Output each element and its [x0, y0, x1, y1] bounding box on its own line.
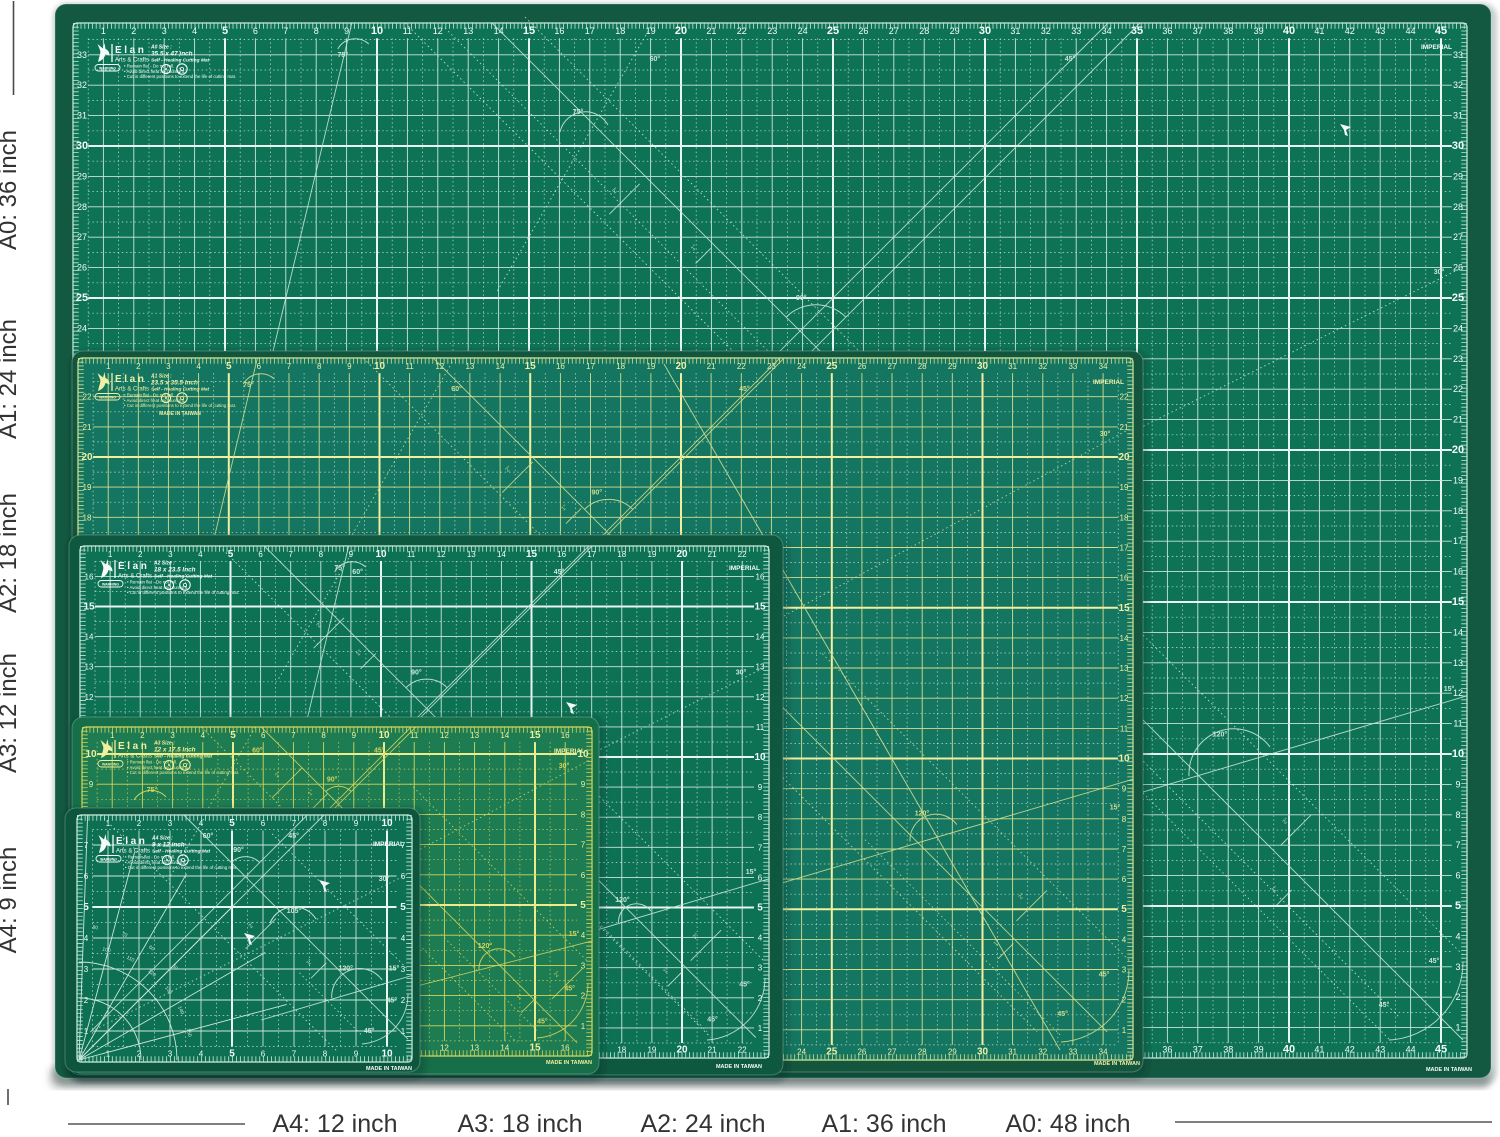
svg-text:19: 19 [647, 550, 656, 559]
svg-text:32: 32 [1038, 362, 1047, 371]
svg-text:16: 16 [1453, 567, 1463, 577]
svg-text:120°: 120° [338, 964, 353, 972]
svg-text:45°: 45° [554, 568, 565, 576]
svg-text:17: 17 [1120, 544, 1129, 553]
svg-text:12: 12 [85, 693, 94, 702]
svg-text:20: 20 [675, 361, 687, 372]
svg-text:• Avoid direct heat and sunlig: • Avoid direct heat and sunlight. [124, 398, 185, 403]
svg-text:29: 29 [948, 362, 957, 371]
svg-text:11: 11 [756, 723, 765, 732]
svg-text:• Cut in different positions t: • Cut in different positions to extend t… [125, 865, 237, 870]
svg-text:60°: 60° [650, 55, 661, 63]
svg-text:9: 9 [1122, 785, 1127, 794]
svg-text:18: 18 [616, 362, 625, 371]
svg-text:8: 8 [323, 819, 328, 828]
svg-text:• Cut in different positions t: • Cut in different positions to extend t… [124, 74, 236, 79]
svg-text:27: 27 [888, 1048, 897, 1057]
svg-text:17: 17 [587, 550, 596, 559]
svg-text:29: 29 [950, 26, 960, 36]
svg-text:75°: 75° [334, 564, 345, 572]
svg-text:15°: 15° [569, 930, 580, 938]
svg-text:5: 5 [230, 730, 236, 741]
svg-text:3: 3 [168, 550, 173, 559]
svg-text:IMPERIAL: IMPERIAL [1093, 379, 1124, 386]
svg-text:8: 8 [314, 26, 319, 36]
svg-text:29: 29 [948, 1048, 957, 1057]
svg-text:11: 11 [407, 550, 416, 559]
svg-text:15: 15 [754, 602, 766, 613]
svg-text:WARNING: WARNING [102, 582, 119, 586]
svg-text:21: 21 [1120, 423, 1129, 432]
svg-text:35.5 x 47 inch: 35.5 x 47 inch [151, 51, 193, 58]
svg-text:26: 26 [857, 362, 866, 371]
svg-text:18: 18 [617, 1046, 626, 1055]
svg-text:45°: 45° [564, 985, 575, 993]
svg-text:5: 5 [228, 549, 234, 560]
svg-text:6: 6 [581, 871, 586, 880]
svg-text:20: 20 [675, 25, 687, 37]
svg-text:12: 12 [440, 731, 449, 740]
svg-text:25: 25 [76, 292, 88, 304]
svg-text:30: 30 [76, 140, 88, 152]
svg-text:• Avoid direct heat and sunlig: • Avoid direct heat and sunlight. [127, 765, 188, 770]
svg-text:IMPERIAL: IMPERIAL [373, 841, 404, 848]
svg-text:1: 1 [106, 819, 111, 828]
svg-text:33: 33 [1068, 1048, 1077, 1057]
svg-text:12: 12 [1120, 694, 1129, 703]
svg-text:1: 1 [758, 1024, 763, 1033]
svg-text:32: 32 [1453, 80, 1463, 90]
svg-text:4: 4 [581, 931, 586, 940]
svg-text:9 x 12 inch: 9 x 12 inch [152, 842, 185, 849]
svg-text:19: 19 [647, 1046, 656, 1055]
svg-text:16: 16 [561, 1044, 570, 1053]
svg-text:24: 24 [797, 362, 806, 371]
svg-text:45: 45 [1435, 1044, 1447, 1056]
svg-text:10: 10 [378, 730, 390, 741]
svg-text:Elan: Elan [115, 374, 147, 385]
svg-text:28: 28 [918, 1048, 927, 1057]
svg-text:2: 2 [401, 996, 406, 1005]
svg-text:43: 43 [1375, 1045, 1385, 1055]
svg-text:16: 16 [756, 572, 765, 581]
svg-text:22: 22 [737, 26, 747, 36]
svg-text:60°: 60° [203, 832, 214, 840]
svg-text:WARNING: WARNING [102, 762, 119, 766]
svg-text:16: 16 [85, 572, 94, 581]
svg-text:90°: 90° [411, 668, 422, 676]
svg-text:44: 44 [1406, 1045, 1416, 1055]
svg-text:13: 13 [470, 731, 479, 740]
svg-text:10: 10 [754, 752, 766, 763]
svg-text:17: 17 [586, 362, 595, 371]
svg-text:45°: 45° [1065, 55, 1076, 63]
svg-text:15: 15 [526, 549, 538, 560]
svg-text:22: 22 [1453, 384, 1463, 394]
svg-text:6: 6 [258, 550, 263, 559]
svg-text:A4: 9 inch: A4: 9 inch [0, 847, 22, 954]
svg-text:22: 22 [738, 1046, 747, 1055]
svg-text:27: 27 [889, 26, 899, 36]
svg-text:28: 28 [1453, 202, 1463, 212]
svg-text:35: 35 [1131, 25, 1143, 37]
svg-text:24: 24 [797, 1048, 806, 1057]
svg-text:28: 28 [918, 362, 927, 371]
svg-text:9: 9 [354, 1050, 359, 1059]
svg-text:14: 14 [500, 1044, 509, 1053]
svg-text:7: 7 [283, 26, 288, 36]
svg-text:9: 9 [1455, 779, 1460, 789]
svg-text:45°: 45° [1057, 1010, 1068, 1018]
svg-text:8: 8 [319, 550, 324, 559]
svg-text:2: 2 [84, 996, 89, 1005]
svg-text:14: 14 [496, 362, 505, 371]
svg-text:10: 10 [375, 549, 387, 560]
svg-text:19: 19 [646, 362, 655, 371]
svg-text:60°: 60° [352, 568, 363, 576]
svg-text:2: 2 [136, 362, 141, 371]
svg-text:4: 4 [199, 1050, 204, 1059]
svg-text:33: 33 [1068, 362, 1077, 371]
svg-text:45°: 45° [739, 385, 750, 393]
svg-text:30°: 30° [736, 668, 747, 676]
svg-text:1: 1 [581, 1022, 586, 1031]
svg-text:12: 12 [756, 693, 765, 702]
svg-text:3: 3 [170, 731, 175, 740]
svg-text:Elan: Elan [115, 45, 147, 56]
svg-text:8: 8 [758, 813, 763, 822]
svg-text:39: 39 [1254, 1045, 1264, 1055]
svg-text:13: 13 [1120, 664, 1129, 673]
svg-text:10: 10 [374, 361, 386, 372]
svg-text:7: 7 [288, 550, 293, 559]
svg-text:14: 14 [500, 731, 509, 740]
svg-text:• Avoid direct heat and sunlig: • Avoid direct heat and sunlight. [125, 860, 186, 865]
svg-text:17: 17 [1453, 536, 1463, 546]
svg-text:22: 22 [737, 362, 746, 371]
svg-text:33: 33 [77, 50, 87, 60]
svg-text:45°: 45° [374, 746, 385, 754]
svg-text:7: 7 [292, 1050, 297, 1059]
svg-text:18: 18 [1453, 506, 1463, 516]
svg-text:8: 8 [321, 731, 326, 740]
svg-text:4: 4 [198, 550, 203, 559]
svg-text:• Avoid direct heat and sunlig: • Avoid direct heat and sunlight. [127, 585, 188, 590]
svg-text:3: 3 [168, 1050, 173, 1059]
svg-text:5: 5 [1455, 900, 1461, 912]
svg-text:12: 12 [440, 1044, 449, 1053]
svg-text:21: 21 [708, 1046, 717, 1055]
svg-text:30: 30 [977, 361, 989, 372]
svg-text:19: 19 [1453, 475, 1463, 485]
svg-text:18: 18 [615, 26, 625, 36]
svg-text:9: 9 [581, 780, 586, 789]
svg-text:3: 3 [1122, 966, 1127, 975]
svg-text:15: 15 [523, 25, 535, 37]
svg-text:21: 21 [706, 26, 716, 36]
svg-text:1: 1 [1455, 1023, 1460, 1033]
svg-text:A0: 48 inch: A0: 48 inch [1005, 1110, 1130, 1137]
svg-text:12: 12 [435, 362, 444, 371]
svg-text:105°: 105° [287, 907, 302, 915]
svg-text:10: 10 [381, 818, 393, 829]
svg-text:90°: 90° [592, 489, 603, 497]
svg-text:18: 18 [617, 550, 626, 559]
svg-text:45°: 45° [739, 981, 750, 989]
svg-text:31: 31 [1010, 26, 1020, 36]
svg-text:45°: 45° [537, 1017, 548, 1025]
svg-text:• Avoid direct heat and sunlig: • Avoid direct heat and sunlight. [124, 69, 185, 74]
svg-text:1: 1 [106, 1050, 111, 1059]
svg-text:7: 7 [1455, 840, 1460, 850]
svg-text:32: 32 [1038, 1048, 1047, 1057]
svg-text:13: 13 [1453, 658, 1463, 668]
svg-text:A4: 12 inch: A4: 12 inch [272, 1110, 397, 1137]
svg-text:12: 12 [433, 26, 443, 36]
svg-text:75°: 75° [573, 108, 584, 116]
svg-text:37: 37 [1193, 26, 1203, 36]
svg-text:1: 1 [1122, 1026, 1127, 1035]
svg-text:5: 5 [757, 903, 763, 914]
svg-text:9: 9 [354, 819, 359, 828]
svg-text:10: 10 [371, 25, 383, 37]
svg-text:26: 26 [858, 26, 868, 36]
svg-text:IMPERIAL: IMPERIAL [554, 748, 585, 755]
svg-text:7: 7 [758, 843, 763, 852]
svg-text:13: 13 [463, 26, 473, 36]
svg-text:10: 10 [381, 1049, 393, 1060]
svg-text:27: 27 [77, 232, 87, 242]
svg-text:32: 32 [1041, 26, 1051, 36]
svg-text:3: 3 [168, 819, 173, 828]
svg-text:20: 20 [1452, 444, 1464, 456]
svg-text:23: 23 [767, 26, 777, 36]
svg-text:7: 7 [1122, 845, 1127, 854]
svg-text:120°: 120° [915, 809, 930, 817]
svg-text:Elan: Elan [116, 836, 148, 847]
svg-text:MADE IN TAIWAN: MADE IN TAIWAN [1426, 1067, 1472, 1073]
svg-text:90°: 90° [327, 775, 338, 783]
svg-text:15: 15 [1452, 596, 1464, 608]
svg-text:11: 11 [1120, 724, 1129, 733]
svg-text:5: 5 [229, 1049, 235, 1060]
svg-text:21: 21 [83, 423, 92, 432]
svg-text:A3: 18 inch: A3: 18 inch [457, 1110, 582, 1137]
svg-text:90°: 90° [796, 294, 807, 302]
svg-text:3: 3 [401, 965, 406, 974]
svg-text:7: 7 [287, 362, 292, 371]
svg-text:120°: 120° [1213, 731, 1228, 739]
svg-text:16: 16 [561, 731, 570, 740]
svg-text:18: 18 [83, 513, 92, 522]
svg-text:12 x 17.5 Inch: 12 x 17.5 Inch [154, 747, 196, 754]
svg-text:15°: 15° [1110, 803, 1121, 811]
svg-text:WARNING: WARNING [99, 66, 116, 70]
svg-text:36: 36 [1162, 26, 1172, 36]
svg-text:45°: 45° [1429, 957, 1440, 965]
svg-text:11: 11 [405, 362, 414, 371]
svg-text:6: 6 [1455, 871, 1460, 881]
svg-text:14: 14 [85, 633, 94, 642]
svg-text:34: 34 [1099, 1048, 1108, 1057]
svg-text:19: 19 [83, 483, 92, 492]
svg-text:15: 15 [525, 361, 537, 372]
svg-text:• Cut in different positions t: • Cut in different positions to extend t… [127, 770, 239, 775]
svg-text:4: 4 [758, 934, 763, 943]
svg-text:30: 30 [979, 25, 991, 37]
svg-text:14: 14 [1120, 634, 1129, 643]
svg-text:45: 45 [1435, 25, 1447, 37]
svg-text:20: 20 [676, 549, 688, 560]
svg-text:30°: 30° [1100, 430, 1111, 438]
svg-text:6: 6 [401, 872, 406, 881]
svg-text:30°: 30° [1434, 268, 1445, 276]
svg-text:41: 41 [1314, 1045, 1324, 1055]
svg-text:15°: 15° [746, 868, 757, 876]
svg-text:80: 80 [92, 925, 98, 932]
svg-text:6: 6 [257, 362, 262, 371]
svg-text:Elan: Elan [118, 561, 150, 572]
svg-text:22: 22 [738, 550, 747, 559]
svg-text:39: 39 [1254, 26, 1264, 36]
svg-text:120°: 120° [478, 942, 493, 950]
svg-text:29: 29 [77, 171, 87, 181]
svg-text:6: 6 [261, 819, 266, 828]
svg-text:41: 41 [1314, 26, 1324, 36]
svg-text:A1: 24 inch: A1: 24 inch [0, 319, 22, 439]
svg-text:45°: 45° [1099, 970, 1110, 978]
svg-text:9: 9 [758, 783, 763, 792]
svg-text:2: 2 [137, 819, 142, 828]
svg-text:38: 38 [1223, 1045, 1233, 1055]
svg-text:20: 20 [676, 1045, 688, 1056]
svg-text:4: 4 [84, 934, 89, 943]
svg-text:43: 43 [1375, 26, 1385, 36]
svg-text:6: 6 [261, 1050, 266, 1059]
svg-text:4: 4 [1122, 935, 1127, 944]
svg-text:36: 36 [1162, 1045, 1172, 1055]
svg-text:1: 1 [108, 550, 113, 559]
svg-text:75°: 75° [338, 51, 349, 59]
svg-text:22: 22 [1120, 393, 1129, 402]
svg-text:18: 18 [1120, 513, 1129, 522]
svg-text:45°: 45° [288, 832, 299, 840]
svg-text:20: 20 [81, 452, 93, 463]
svg-text:45°: 45° [364, 1027, 375, 1035]
svg-text:31: 31 [1008, 1048, 1017, 1057]
svg-text:6: 6 [261, 731, 266, 740]
svg-text:6: 6 [253, 26, 258, 36]
svg-text:20: 20 [1118, 452, 1130, 463]
svg-text:27: 27 [1453, 232, 1463, 242]
svg-text:15°: 15° [389, 965, 400, 973]
svg-text:A0: 36 inch: A0: 36 inch [0, 130, 22, 250]
svg-text:1: 1 [106, 362, 111, 371]
svg-text:17: 17 [585, 26, 595, 36]
svg-text:12: 12 [437, 550, 446, 559]
svg-text:31: 31 [77, 111, 87, 121]
svg-text:• Cut in different positions t: • Cut in different positions to extend t… [127, 590, 239, 595]
svg-text:6: 6 [1122, 875, 1127, 884]
svg-text:15: 15 [1118, 603, 1130, 614]
svg-text:3: 3 [162, 26, 167, 36]
svg-text:10: 10 [85, 749, 97, 760]
svg-text:13: 13 [470, 1044, 479, 1053]
svg-text:MADE IN TAIWAN: MADE IN TAIWAN [159, 411, 201, 417]
svg-text:28: 28 [77, 202, 87, 212]
svg-text:31: 31 [1008, 362, 1017, 371]
svg-text:3: 3 [166, 362, 171, 371]
svg-text:5: 5 [1121, 904, 1127, 915]
svg-text:3: 3 [758, 964, 763, 973]
svg-text:16: 16 [557, 550, 566, 559]
svg-text:MADE IN TAIWAN: MADE IN TAIWAN [546, 1060, 592, 1066]
svg-text:90°: 90° [233, 846, 244, 854]
svg-text:IMPERIAL: IMPERIAL [729, 565, 760, 572]
svg-text:32: 32 [77, 80, 87, 90]
svg-text:4: 4 [192, 26, 197, 36]
svg-text:IMPERIAL: IMPERIAL [1421, 44, 1452, 51]
svg-text:13: 13 [85, 663, 94, 672]
svg-text:5: 5 [580, 900, 586, 911]
svg-text:45°: 45° [387, 997, 398, 1005]
svg-text:4: 4 [1455, 931, 1460, 941]
svg-text:7: 7 [291, 731, 296, 740]
svg-text:25: 25 [1452, 292, 1464, 304]
svg-text:11: 11 [403, 26, 412, 36]
svg-text:16: 16 [556, 362, 565, 371]
svg-text:19: 19 [1120, 483, 1129, 492]
svg-text:40: 40 [1283, 25, 1295, 37]
svg-text:21: 21 [707, 362, 716, 371]
svg-text:38: 38 [1223, 26, 1233, 36]
svg-text:4: 4 [196, 362, 201, 371]
svg-text:21: 21 [1453, 415, 1463, 425]
svg-text:8: 8 [1455, 810, 1460, 820]
svg-text:MADE IN TAIWAN: MADE IN TAIWAN [366, 1066, 412, 1072]
svg-text:5: 5 [400, 902, 406, 913]
svg-text:23.5 x 35.5 Inch: 23.5 x 35.5 Inch [150, 380, 198, 387]
svg-text:26: 26 [77, 263, 87, 273]
svg-text:24: 24 [798, 26, 808, 36]
svg-text:34: 34 [1099, 362, 1108, 371]
svg-text:29: 29 [1453, 171, 1463, 181]
svg-text:3: 3 [1455, 962, 1460, 972]
svg-text:14: 14 [494, 26, 504, 36]
svg-text:WARNING: WARNING [99, 395, 116, 399]
svg-text:WARNING: WARNING [100, 857, 117, 861]
svg-text:2: 2 [140, 731, 145, 740]
svg-text:A3: 12 inch: A3: 12 inch [0, 653, 22, 773]
svg-text:10: 10 [1452, 748, 1464, 760]
svg-text:44: 44 [1406, 26, 1416, 36]
svg-text:8: 8 [317, 362, 322, 371]
svg-text:12: 12 [1453, 688, 1463, 698]
svg-text:28: 28 [919, 26, 929, 36]
svg-text:9: 9 [347, 362, 352, 371]
svg-text:25: 25 [826, 1047, 838, 1058]
svg-text:31: 31 [1453, 111, 1463, 121]
svg-text:25: 25 [827, 25, 839, 37]
svg-text:10: 10 [1118, 754, 1130, 765]
svg-text:13: 13 [465, 362, 474, 371]
svg-text:33: 33 [1453, 50, 1463, 60]
svg-text:1: 1 [101, 26, 106, 36]
svg-text:13: 13 [467, 550, 476, 559]
svg-text:15: 15 [529, 730, 541, 741]
svg-text:24: 24 [77, 323, 87, 333]
svg-text:8: 8 [323, 1050, 328, 1059]
